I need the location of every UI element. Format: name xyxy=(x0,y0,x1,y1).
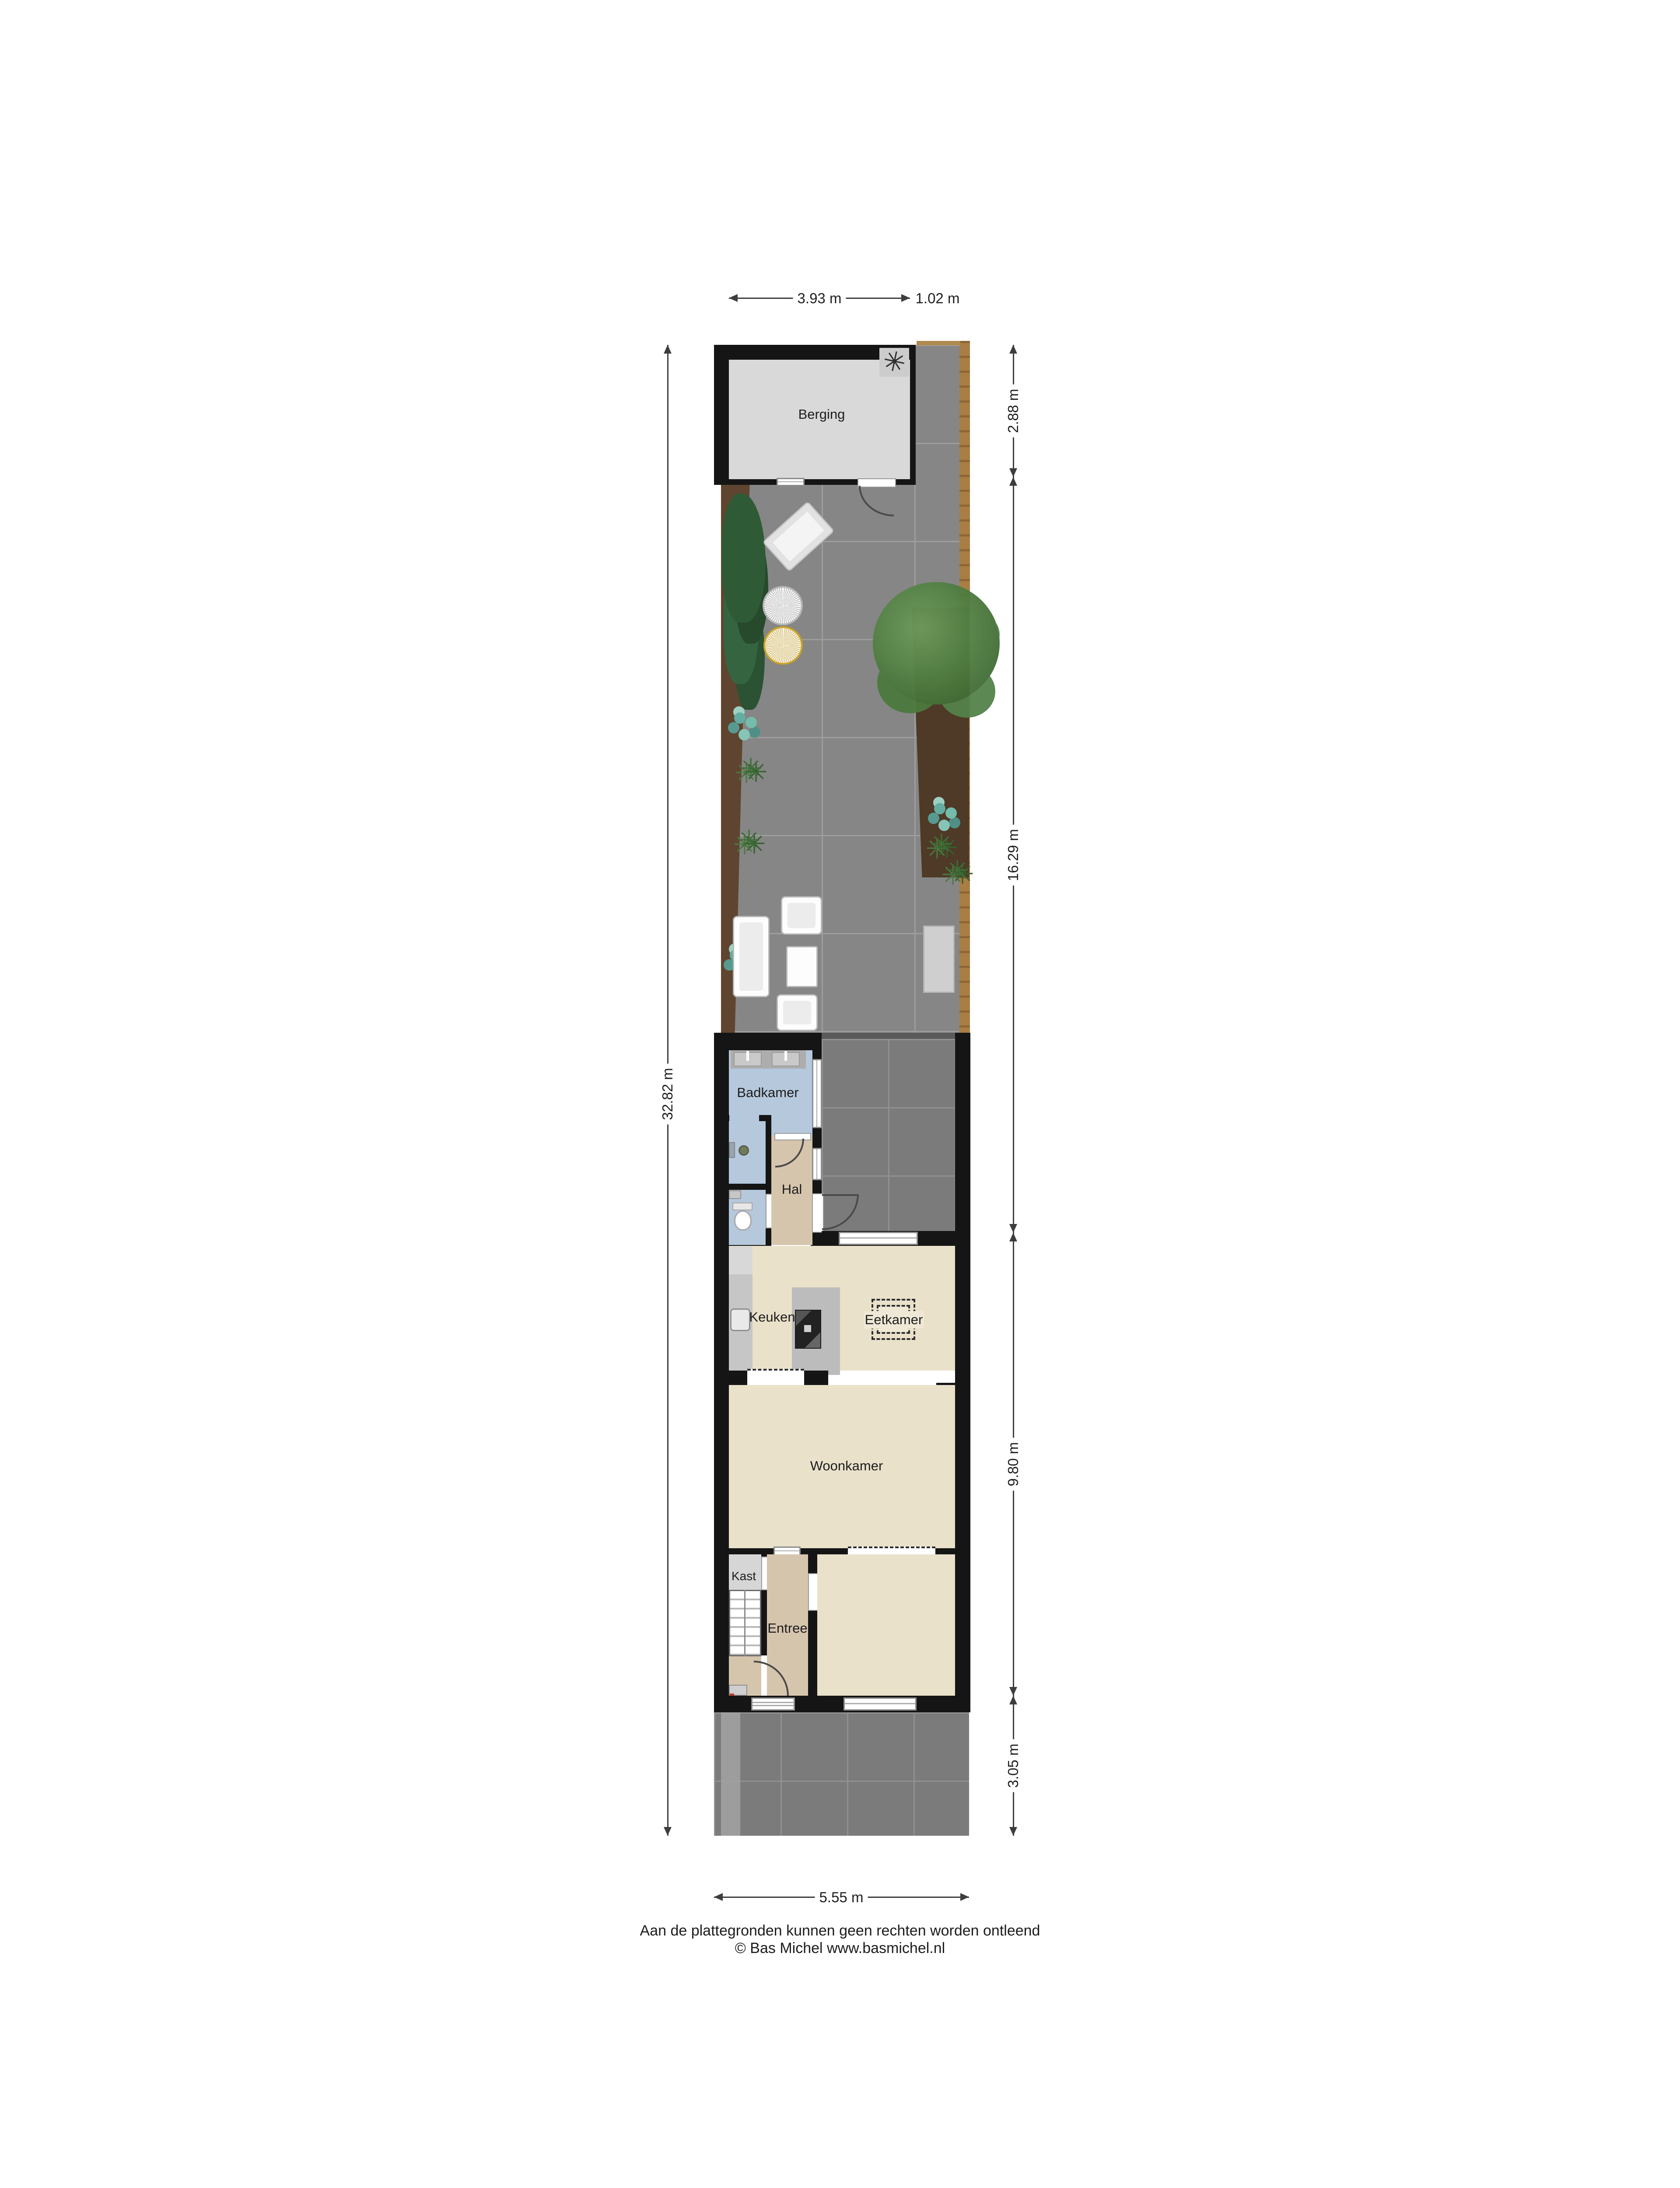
arrow-icon xyxy=(1009,477,1017,486)
frontroom-window xyxy=(843,1697,917,1711)
teal-flowers xyxy=(734,712,745,724)
badkamer-right-strip xyxy=(771,1115,812,1136)
arrow-icon xyxy=(1009,1687,1017,1696)
berging-window xyxy=(777,478,805,486)
hal-window xyxy=(812,1148,822,1180)
arrow-icon xyxy=(664,1827,672,1836)
dim-label-top-berging: 3.93 m xyxy=(793,289,846,308)
ventilation-unit: ✳ xyxy=(879,348,909,377)
grass-tuft-icon: ✳ xyxy=(945,855,969,887)
cooktop-center xyxy=(804,1325,811,1332)
room-label-kast: Kast xyxy=(731,1569,756,1583)
stairs-rail xyxy=(744,1590,745,1656)
dim-label-bottom: 5.55 m xyxy=(815,1888,868,1907)
badkamer-window xyxy=(812,1059,822,1128)
wc-sink xyxy=(729,1190,741,1199)
room-label-badkamer: Badkamer xyxy=(737,1085,798,1101)
keuken-south-wall xyxy=(729,1371,747,1385)
room-label-woonkamer: Woonkamer xyxy=(810,1458,883,1474)
front-door xyxy=(751,1697,795,1711)
teal-flowers xyxy=(934,803,945,814)
keuken-south-wall xyxy=(804,1371,828,1385)
kitchen-appliance xyxy=(730,1308,750,1331)
outdoor-sofa xyxy=(733,916,770,997)
house-wall-left xyxy=(714,1033,729,1712)
dim-label-right-garden: 16.29 m xyxy=(1004,824,1022,885)
garden-wood-edge-top xyxy=(917,341,960,345)
room-label-hal: Hal xyxy=(782,1182,802,1197)
arrow-icon xyxy=(664,345,672,354)
arrow-icon xyxy=(714,1893,723,1901)
footer-disclaimer: Aan de plattegronden kunnen geen rechten… xyxy=(534,1922,1146,1957)
room-keuken-eetkamer xyxy=(729,1246,955,1371)
arrow-icon xyxy=(1009,1224,1017,1233)
garden-bench xyxy=(923,926,955,993)
arrow-icon xyxy=(960,1893,969,1901)
outdoor-table xyxy=(786,946,818,987)
outdoor-armchair xyxy=(777,994,818,1031)
eetkamer-window xyxy=(839,1232,918,1245)
floorplan-canvas: ✳ ✳ ✳ ✳ ✳ Berging Badkamer xyxy=(0,0,1680,2188)
wc-wall xyxy=(714,1184,766,1190)
footer-line-disclaimer: Aan de plattegronden kunnen geen rechten… xyxy=(534,1922,1146,1939)
room-frontroom xyxy=(817,1554,955,1696)
arrow-icon xyxy=(1009,1233,1017,1241)
wire-chair xyxy=(763,586,803,625)
room-label-eetkamer: Eetkamer xyxy=(864,1311,924,1329)
arrow-icon xyxy=(1009,1696,1017,1704)
garden-tree xyxy=(873,582,1000,705)
faucet-icon xyxy=(784,1051,787,1061)
shower-head-icon xyxy=(738,1145,749,1156)
arrow-icon xyxy=(1009,468,1017,477)
terrace-top-edge xyxy=(822,1033,969,1039)
dim-label-top-passage: 1.02 m xyxy=(911,289,964,308)
toilet-tank xyxy=(732,1203,752,1210)
shower-wall-fixture xyxy=(729,1142,735,1158)
dim-label-right-frontyard: 3.05 m xyxy=(1004,1739,1022,1792)
toilet-bowl-icon xyxy=(734,1210,752,1231)
house-wall-right xyxy=(955,1033,970,1712)
shower-wall xyxy=(714,1115,729,1121)
hal-west-wall xyxy=(766,1115,771,1194)
footer-line-credit: © Bas Michel www.basmichel.nl xyxy=(534,1939,1146,1957)
arrow-icon xyxy=(729,294,738,302)
dim-label-left-total: 32.82 m xyxy=(658,1063,677,1124)
faucet-icon xyxy=(746,1051,749,1061)
keuken-woonkamer-opening xyxy=(747,1369,804,1387)
wire-chair-yellow xyxy=(763,626,803,665)
grass-tuft-icon: ✳ xyxy=(737,824,761,857)
arrow-icon xyxy=(1009,1827,1017,1836)
room-label-entree: Entree xyxy=(767,1620,807,1636)
outdoor-armchair xyxy=(781,896,822,935)
grass-tuft-icon: ✳ xyxy=(739,753,763,785)
room-label-berging: Berging xyxy=(798,407,845,422)
dim-label-right-berging: 2.88 m xyxy=(1004,385,1022,438)
dim-label-right-house: 9.80 m xyxy=(1004,1438,1022,1491)
arrow-icon xyxy=(1009,345,1017,354)
room-label-keuken: Keuken xyxy=(749,1309,795,1325)
house-wall-top-badkamer xyxy=(714,1033,822,1050)
arrow-icon xyxy=(901,294,910,302)
frontyard-path-strip xyxy=(721,1712,740,1836)
frontyard-paving xyxy=(714,1712,969,1836)
ventilation-fan-icon: ✳ xyxy=(880,346,909,379)
